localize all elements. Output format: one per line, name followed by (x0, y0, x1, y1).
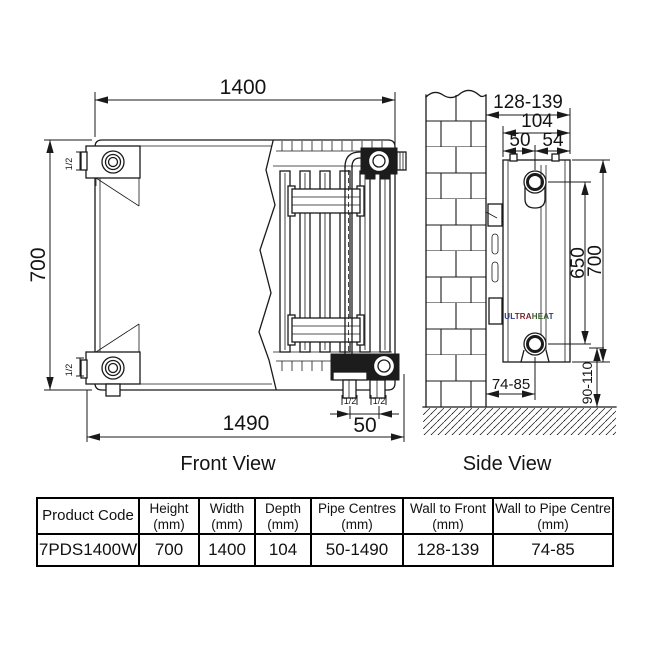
dim-back-to-pipe-label: 50 (509, 130, 530, 151)
spec-header-row: Product Code Height(mm) Width(mm) Depth(… (37, 498, 613, 534)
dim-depth-label: 104 (521, 111, 553, 132)
cell-wall-to-pipe-centre: 74-85 (493, 534, 613, 566)
brick-wall (426, 90, 486, 407)
col-header-width: Width(mm) (199, 498, 255, 534)
valve-top-left (81, 146, 140, 206)
front-view: 1400 700 1/2 1/2 1490 (27, 76, 406, 475)
cell-pipe-centres: 50-1490 (311, 534, 403, 566)
dim-overall-width-label: 1490 (223, 412, 270, 435)
cell-wall-to-front: 128-139 (403, 534, 493, 566)
technical-drawing: 1400 700 1/2 1/2 1490 (0, 0, 650, 492)
dim-wall-to-pipe-centre-label: 74-85 (492, 376, 530, 393)
back-panel-slot (492, 234, 498, 254)
dim-pipe-spacing-label: 50 (353, 414, 376, 437)
dim-width-label: 1400 (220, 76, 267, 99)
side-view-caption: Side View (463, 453, 552, 475)
dim-side-height-label: 700 (585, 245, 606, 277)
bottom-notches (282, 361, 332, 371)
dim-floor-clearance-label: 90-110 (579, 362, 595, 405)
col-header-pipe-centres: Pipe Centres(mm) (311, 498, 403, 534)
dim-pipe-to-front-label: 54 (542, 130, 564, 151)
connector-bottom-right (331, 354, 399, 398)
dim-height-label: 700 (27, 247, 50, 282)
side-radiator-profile: ULTRAHEAT (486, 154, 570, 362)
col-header-depth: Depth(mm) (255, 498, 311, 534)
side-view: ULTRAHEAT 128-139 104 50 54 650 700 9 (423, 90, 616, 475)
conn-bottom-left-label: 1/2 (64, 364, 74, 377)
conn-bottom-right-1-label: 1/2 (344, 396, 357, 406)
front-view-caption: Front View (180, 453, 276, 475)
spec-table: Product Code Height(mm) Width(mm) Depth(… (36, 497, 614, 567)
wall-bracket-lower (489, 298, 502, 324)
brand-logo: ULTRAHEAT (504, 312, 554, 321)
cell-width: 1400 (199, 534, 255, 566)
back-panel-slot (492, 262, 498, 282)
dim-wall-to-front-label: 128-139 (493, 92, 563, 113)
cell-depth: 104 (255, 534, 311, 566)
col-header-wall-to-front: Wall to Front(mm) (403, 498, 493, 534)
conn-bottom-right-2-label: 1/2 (373, 396, 386, 406)
wall-bracket-upper (486, 204, 502, 226)
radiator-dimension-sheet: 1400 700 1/2 1/2 1490 (0, 0, 650, 650)
col-header-height: Height(mm) (139, 498, 199, 534)
valve-bottom-left (81, 324, 140, 396)
ground (423, 407, 616, 435)
cell-height: 700 (139, 534, 199, 566)
cell-product-code: 7PDS1400W (37, 534, 139, 566)
spec-data-row: 7PDS1400W 700 1400 104 50-1490 128-139 7… (37, 534, 613, 566)
col-header-wall-to-pipe-centre: Wall to Pipe Centre(mm) (493, 498, 613, 534)
conn-top-left-label: 1/2 (64, 158, 74, 171)
col-header-product-code: Product Code (37, 498, 139, 534)
connector-top-right (361, 148, 406, 179)
front-radiator-body (81, 140, 406, 398)
